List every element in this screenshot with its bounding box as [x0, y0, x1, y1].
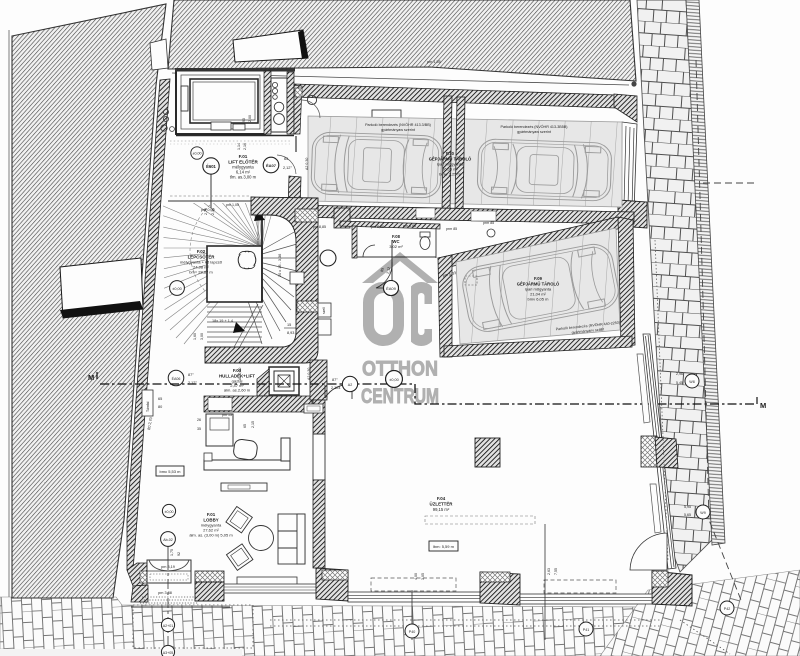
svg-text:2,12°: 2,12°: [283, 166, 292, 170]
svg-text:É601: É601: [206, 164, 216, 169]
svg-text:2,15: 2,15: [251, 421, 255, 428]
svg-text:A2: A2: [348, 383, 352, 387]
svg-text:Parkoló berendezés (NVÓHR 413.: Parkoló berendezés (NVÓHR 413.3/BB): [365, 122, 431, 127]
svg-text:prm 85: prm 85: [483, 221, 494, 225]
svg-text:ÉA06: ÉA06: [172, 376, 181, 381]
svg-text:lbm: 5,59 m: lbm: 5,59 m: [433, 544, 455, 549]
svg-text:92: 92: [177, 552, 181, 556]
svg-text:pm 1,55: pm 1,55: [427, 60, 441, 64]
svg-text:±0,00: ±0,00: [165, 510, 174, 514]
svg-text:LIFT ELŐTÉR: LIFT ELŐTÉR: [228, 158, 258, 165]
svg-text:A2 0,30: A2 0,30: [305, 158, 309, 170]
svg-text:pm 8,85: pm 8,85: [371, 225, 384, 229]
svg-text:pm 8,85: pm 8,85: [313, 225, 326, 229]
svg-text:±0,00: ±0,00: [172, 287, 181, 291]
svg-text:80: 80: [158, 405, 162, 409]
svg-text:±0,00: ±0,00: [193, 152, 202, 156]
svg-text:pm 15: pm 15: [222, 413, 232, 417]
svg-text:1,60: 1,60: [193, 333, 197, 340]
svg-text:7,55: 7,55: [554, 568, 558, 575]
svg-text:bm= 28,87 m: bm= 28,87 m: [189, 270, 213, 275]
svg-text:F.10: F.10: [446, 151, 455, 156]
svg-text:pm 0,00: pm 0,00: [201, 208, 215, 212]
svg-text:gyártmányaw szerint: gyártmányaw szerint: [517, 130, 551, 134]
svg-text:3,02 m²: 3,02 m²: [389, 244, 403, 249]
svg-text:26: 26: [197, 418, 201, 422]
svg-text:65: 65: [243, 424, 247, 428]
svg-text:pm 8,85: pm 8,85: [403, 224, 416, 228]
svg-text:W8: W8: [689, 380, 694, 384]
svg-text:±0,00: ±0,00: [389, 378, 398, 382]
svg-text:15: 15: [287, 323, 291, 327]
svg-text:3,05: 3,05: [421, 573, 425, 580]
svg-text:álm. as. (3,00 m) 5,05 m: álm. as. (3,00 m) 5,05 m: [189, 533, 233, 538]
svg-text:87°: 87°: [332, 378, 338, 382]
svg-text:35: 35: [197, 427, 201, 431]
svg-text:bmc 5,53 m: bmc 5,53 m: [160, 469, 182, 474]
svg-text:5,65: 5,65: [684, 513, 691, 517]
svg-text:ÉA07: ÉA07: [266, 163, 277, 168]
svg-text:pm 1,00: pm 1,00: [226, 203, 239, 207]
svg-text:F.01: F.01: [207, 512, 216, 517]
svg-text:18x 19 + 1,4: 18x 19 + 1,4: [212, 319, 233, 323]
svg-text:P41: P41: [583, 628, 589, 632]
svg-text:1,75: 1,75: [170, 549, 174, 556]
svg-text:P42: P42: [724, 607, 730, 611]
svg-text:Ab-02: Ab-02: [163, 538, 173, 542]
svg-text:CENTRUM: CENTRUM: [361, 385, 439, 408]
svg-text:8,93: 8,93: [287, 331, 294, 335]
svg-text:bmw 2,25 m: bmw 2,25 m: [439, 172, 461, 177]
svg-text:A2 0,30: A2 0,30: [238, 368, 242, 380]
svg-text:99,15 m²: 99,15 m²: [433, 507, 450, 512]
svg-text:M: M: [760, 401, 766, 410]
svg-text:pm 3,88: pm 3,88: [158, 591, 172, 595]
svg-text:20 x 16 - 3,36: 20 x 16 - 3,36: [278, 254, 282, 277]
svg-text:W9: W9: [700, 511, 705, 515]
svg-text:2,96: 2,96: [676, 372, 683, 376]
svg-text:Támfal: Támfal: [146, 401, 150, 412]
svg-text:Parkoló berendezés (NVÓHR 413-: Parkoló berendezés (NVÓHR 413-3B5B): [500, 124, 567, 129]
svg-text:90: 90: [242, 118, 246, 122]
svg-text:F.02: F.02: [197, 249, 206, 254]
svg-text:4,00: 4,00: [414, 573, 418, 580]
svg-text:szell: szell: [322, 307, 326, 314]
svg-text:65: 65: [284, 157, 288, 161]
svg-text:prm 85: prm 85: [446, 227, 457, 231]
svg-text:gyártmányaw szerint: gyártmányaw szerint: [381, 128, 415, 132]
svg-text:5,95: 5,95: [684, 505, 691, 509]
svg-text:3,00: 3,00: [200, 333, 204, 340]
svg-text:M: M: [88, 373, 94, 382]
svg-text:álm. as.2,60 m: álm. as.2,60 m: [224, 388, 251, 393]
svg-text:87°: 87°: [188, 373, 194, 377]
svg-text:A3+05: A3+05: [163, 651, 174, 655]
svg-text:F.01: F.01: [239, 154, 248, 159]
svg-text:F.09: F.09: [534, 276, 543, 281]
svg-text:bmv 6,05 m: bmv 6,05 m: [528, 297, 550, 302]
svg-text:65: 65: [158, 397, 162, 401]
svg-text:2,63: 2,63: [547, 568, 551, 575]
svg-text:F.04: F.04: [437, 496, 446, 501]
svg-text:ÉA09: ÉA09: [386, 286, 397, 291]
svg-text:2,124: 2,124: [331, 386, 341, 390]
svg-text:5,45: 5,45: [676, 381, 683, 385]
svg-text:A2+01: A2+01: [163, 624, 174, 628]
svg-text:ÜZLETTÉR: ÜZLETTÉR: [430, 502, 454, 507]
svg-text:tlm. as.3,00 m: tlm. as.3,00 m: [230, 175, 257, 180]
svg-text:P40: P40: [409, 630, 415, 634]
svg-text:A2 0,30: A2 0,30: [307, 368, 311, 380]
svg-text:2,00: 2,00: [248, 115, 252, 122]
